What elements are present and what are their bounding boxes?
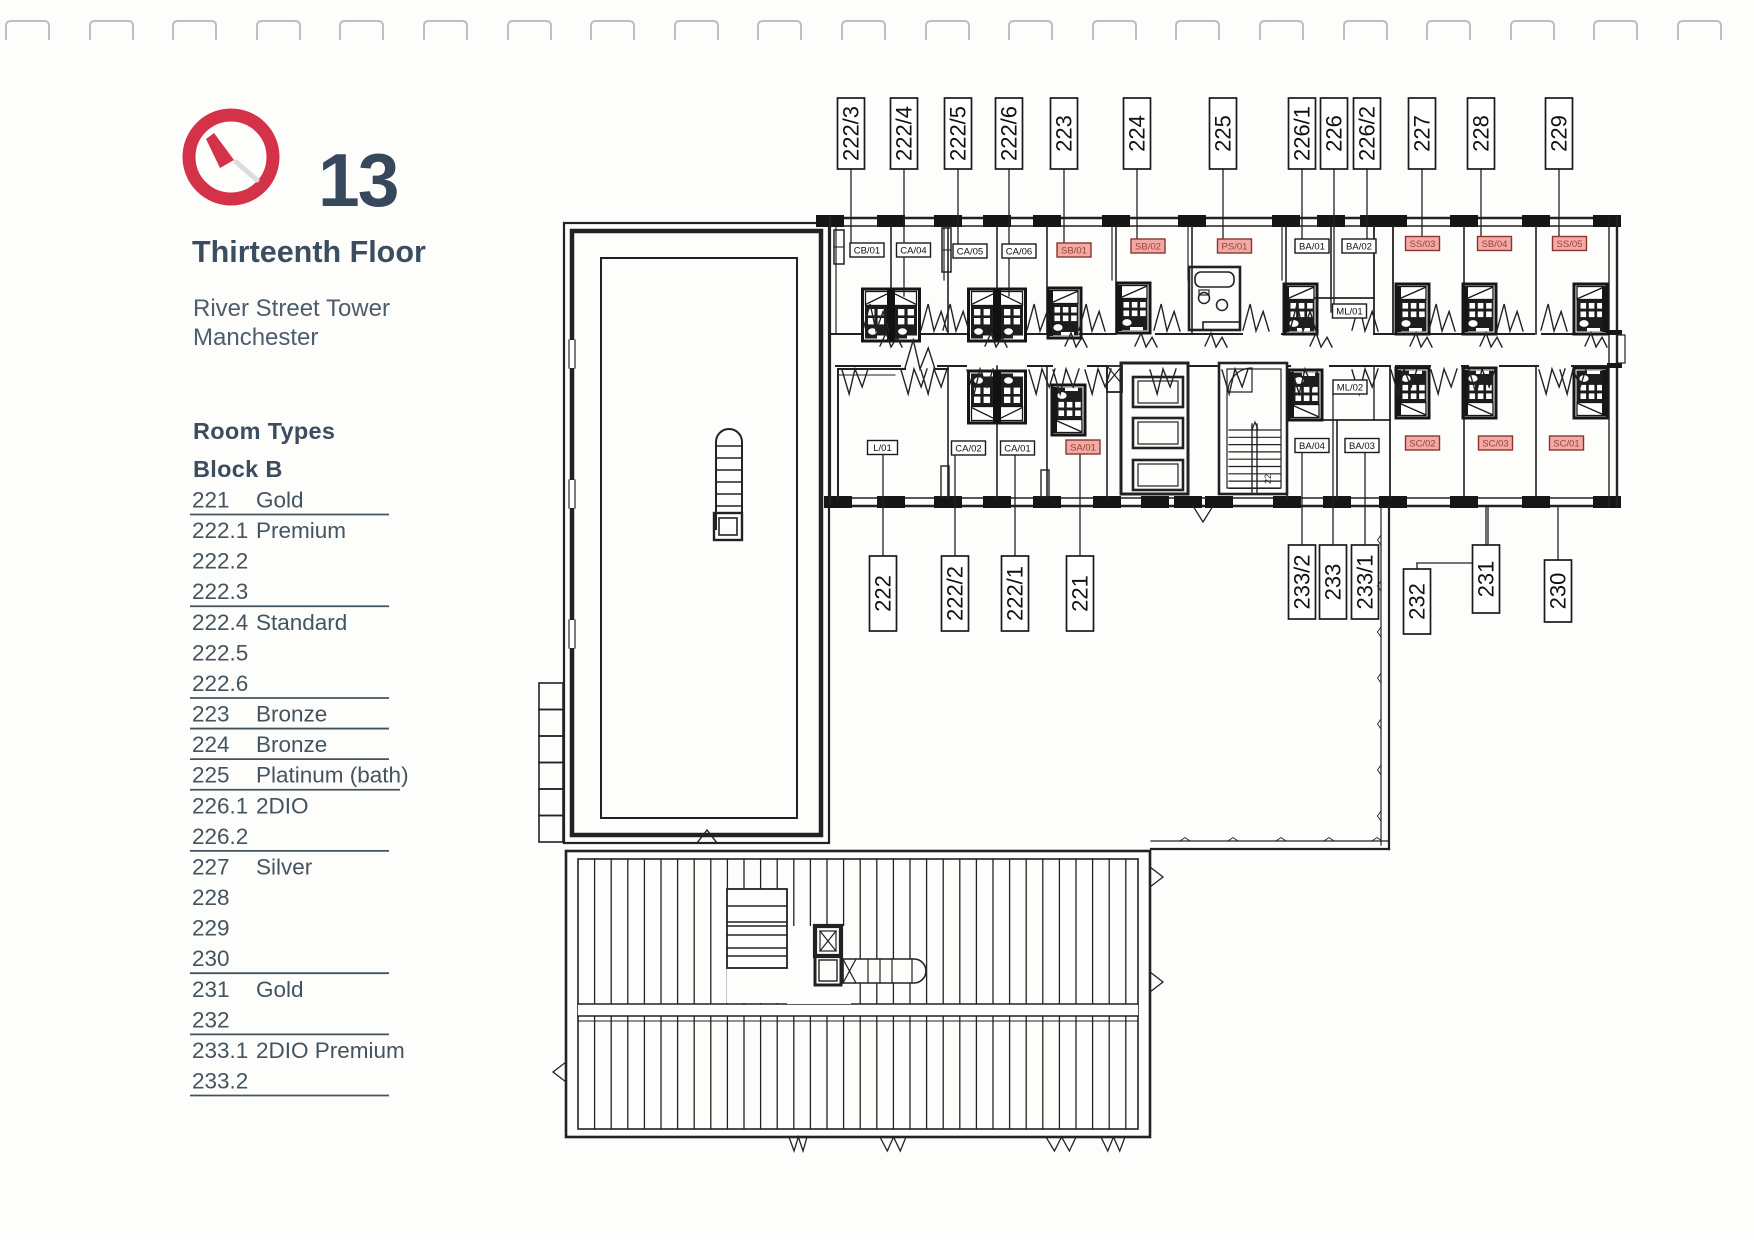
svg-text:SB/04: SB/04 <box>1482 239 1508 250</box>
svg-text:Gold: Gold <box>256 977 304 1002</box>
svg-text:222/1: 222/1 <box>1003 566 1028 621</box>
svg-text:SS/05: SS/05 <box>1557 239 1583 250</box>
svg-text:228: 228 <box>1469 115 1494 152</box>
svg-text:Premium: Premium <box>256 518 346 543</box>
svg-text:SC/01: SC/01 <box>1553 439 1579 450</box>
svg-text:231: 231 <box>1474 561 1499 598</box>
svg-text:SB/01: SB/01 <box>1061 246 1087 257</box>
svg-text:226/2: 226/2 <box>1355 106 1380 161</box>
svg-text:SC/02: SC/02 <box>1409 439 1435 450</box>
svg-text:BA/02: BA/02 <box>1346 242 1372 253</box>
svg-text:222.2: 222.2 <box>192 549 248 574</box>
svg-text:CA/04: CA/04 <box>900 246 926 257</box>
svg-text:222/5: 222/5 <box>946 106 971 161</box>
svg-text:233/2: 233/2 <box>1290 554 1315 609</box>
svg-text:224: 224 <box>1125 115 1150 152</box>
svg-text:221: 221 <box>192 488 230 513</box>
svg-text:229: 229 <box>192 916 230 941</box>
svg-text:228: 228 <box>192 885 230 910</box>
svg-text:13: 13 <box>318 138 397 222</box>
svg-text:CA/05: CA/05 <box>957 247 983 258</box>
svg-text:Block B: Block B <box>193 456 283 482</box>
svg-text:227: 227 <box>192 854 230 879</box>
svg-text:225: 225 <box>1211 115 1236 152</box>
svg-text:PS/01: PS/01 <box>1222 242 1248 253</box>
svg-text:224: 224 <box>192 732 230 757</box>
svg-text:231: 231 <box>192 977 230 1002</box>
svg-text:226/1: 226/1 <box>1290 106 1315 161</box>
svg-text:2DIO: 2DIO <box>256 793 309 818</box>
svg-text:222.1: 222.1 <box>192 518 248 543</box>
svg-text:CA/01: CA/01 <box>1004 444 1030 455</box>
svg-text:233/1: 233/1 <box>1353 554 1378 609</box>
svg-text:Thirteenth Floor: Thirteenth Floor <box>192 235 426 269</box>
svg-text:22: 22 <box>1263 474 1273 484</box>
svg-text:Silver: Silver <box>256 854 313 879</box>
svg-text:ML/02: ML/02 <box>1337 383 1363 394</box>
svg-text:Room Types: Room Types <box>193 418 335 444</box>
svg-text:CA/02: CA/02 <box>955 444 981 455</box>
svg-text:223: 223 <box>192 702 230 727</box>
svg-text:Bronze: Bronze <box>256 732 327 757</box>
svg-text:233: 233 <box>1321 564 1346 601</box>
svg-text:232: 232 <box>192 1007 230 1032</box>
svg-text:CB/01: CB/01 <box>854 246 880 257</box>
svg-text:221: 221 <box>1068 575 1093 612</box>
svg-text:222.6: 222.6 <box>192 671 248 696</box>
svg-text:223: 223 <box>1052 115 1077 152</box>
svg-text:230: 230 <box>1546 573 1571 610</box>
svg-text:222.4: 222.4 <box>192 610 248 635</box>
svg-text:222/3: 222/3 <box>839 106 864 161</box>
svg-text:222/4: 222/4 <box>892 106 917 161</box>
svg-text:229: 229 <box>1547 115 1572 152</box>
svg-text:SA/01: SA/01 <box>1070 443 1096 454</box>
svg-text:SS/03: SS/03 <box>1410 239 1436 250</box>
svg-text:Bronze: Bronze <box>256 702 327 727</box>
svg-text:River Street Tower: River Street Tower <box>193 295 390 322</box>
svg-text:226: 226 <box>1322 115 1347 152</box>
svg-text:L/01: L/01 <box>873 443 892 454</box>
svg-text:BA/01: BA/01 <box>1299 242 1325 253</box>
svg-text:225: 225 <box>192 763 230 788</box>
svg-text:233.1: 233.1 <box>192 1038 248 1063</box>
svg-text:CA/06: CA/06 <box>1006 247 1032 258</box>
svg-text:SC/03: SC/03 <box>1482 439 1508 450</box>
svg-text:227: 227 <box>1410 115 1435 152</box>
svg-text:232: 232 <box>1405 583 1430 620</box>
svg-text:230: 230 <box>192 946 230 971</box>
svg-text:226.1: 226.1 <box>192 793 248 818</box>
svg-text:222/2: 222/2 <box>943 566 968 621</box>
svg-text:SB/02: SB/02 <box>1135 242 1161 253</box>
svg-text:Platinum (bath): Platinum (bath) <box>256 763 409 788</box>
svg-text:BA/04: BA/04 <box>1299 441 1325 452</box>
svg-text:Standard: Standard <box>256 610 347 635</box>
svg-text:226.2: 226.2 <box>192 824 248 849</box>
svg-text:BA/03: BA/03 <box>1349 441 1375 452</box>
svg-text:Gold: Gold <box>256 488 304 513</box>
svg-text:222.5: 222.5 <box>192 640 248 665</box>
svg-text:Manchester: Manchester <box>193 324 318 351</box>
svg-text:222.3: 222.3 <box>192 579 248 604</box>
svg-text:222/6: 222/6 <box>997 106 1022 161</box>
svg-text:233.2: 233.2 <box>192 1069 248 1094</box>
svg-text:2DIO Premium: 2DIO Premium <box>256 1038 405 1063</box>
svg-text:222: 222 <box>871 575 896 612</box>
svg-text:ML/01: ML/01 <box>1336 307 1362 318</box>
